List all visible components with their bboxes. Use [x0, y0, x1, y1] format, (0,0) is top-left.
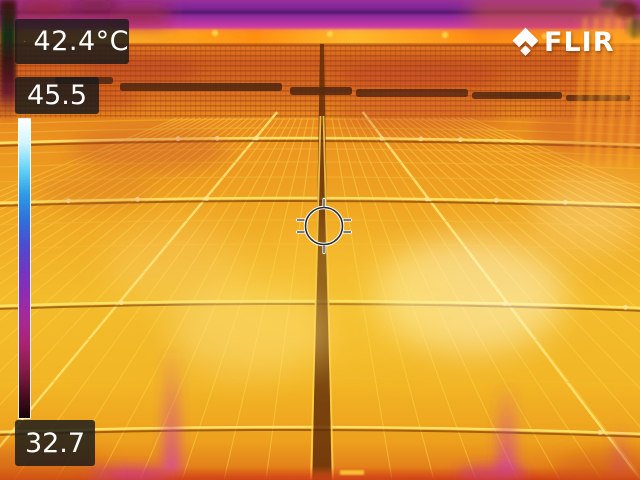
- scale-min-label: 32.7: [15, 420, 95, 466]
- spot-temperature-readout: 42.4°C: [15, 19, 129, 64]
- spot-meter-icon: [24, 31, 26, 52]
- flir-logo: FLIR: [512, 27, 615, 57]
- flir-thermal-capture: 42.4°C 45.5 32.7 FLIR: [0, 0, 640, 480]
- temperature-scale-bar: [18, 118, 31, 419]
- flir-wordmark: FLIR: [544, 27, 615, 58]
- scale-max-label: 45.5: [15, 77, 99, 114]
- spot-meter-reticle: [292, 194, 356, 258]
- flir-logo-icon: [512, 27, 539, 57]
- spot-temperature-value: 42.4°C: [34, 26, 129, 57]
